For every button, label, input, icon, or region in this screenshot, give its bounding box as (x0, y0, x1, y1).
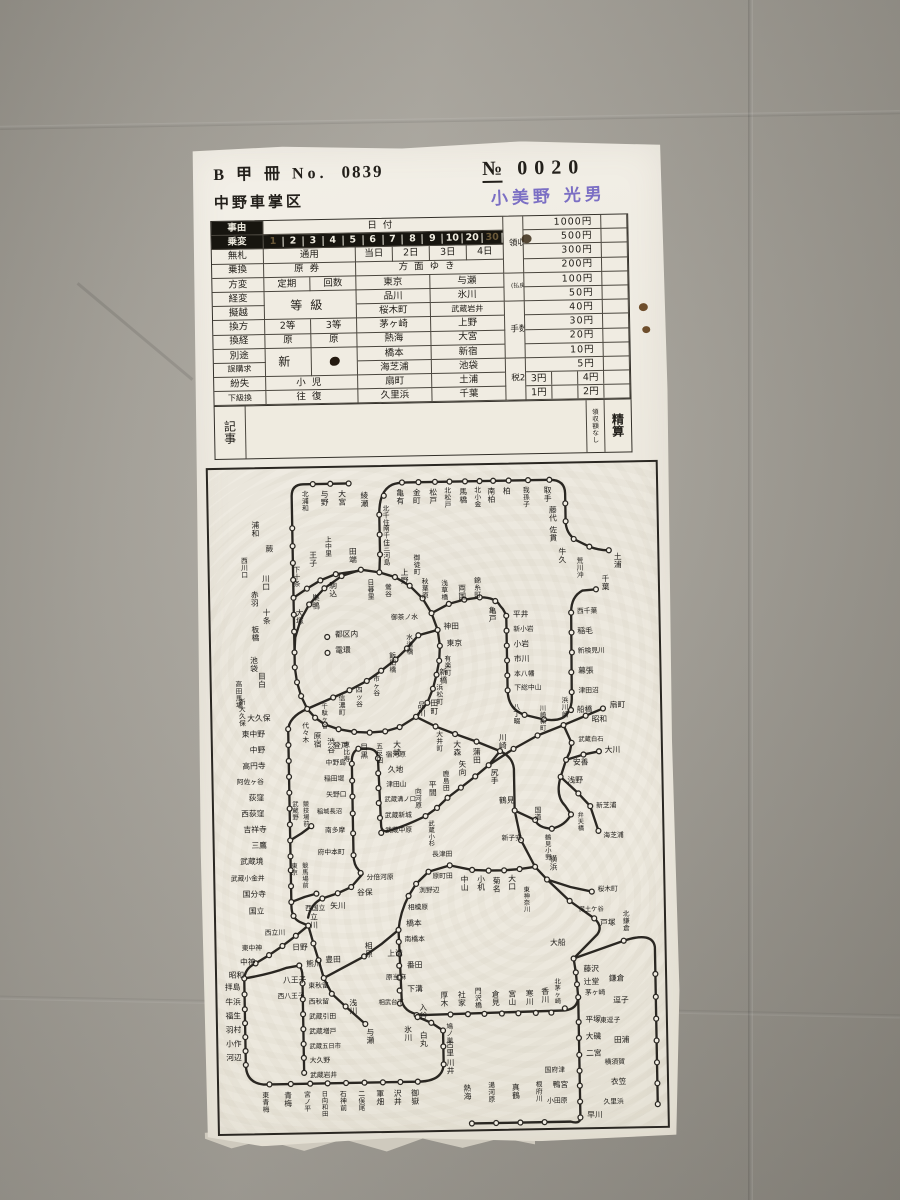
station-label: 武蔵増戸 (309, 1027, 336, 1037)
station-dot (563, 501, 568, 506)
ink-blob (329, 357, 339, 366)
station-dot (243, 1035, 248, 1040)
station-label: 社家 (458, 990, 466, 1008)
station-dot (517, 867, 522, 872)
station-label: 稲城長沼 (317, 807, 342, 817)
station-dot (516, 1011, 521, 1016)
station-dot (426, 870, 431, 875)
class-cell: 等級 (265, 290, 358, 320)
station-dot (286, 759, 291, 764)
station-label: 佐貫 (549, 525, 557, 543)
station-dot (377, 513, 382, 518)
station-label: 真鶴 (512, 1082, 520, 1100)
station-label: 馬橋 (459, 488, 467, 505)
station-dot (286, 743, 291, 748)
station-dot (653, 972, 658, 977)
station-label: 与瀬 (366, 1028, 374, 1045)
station-dot (576, 995, 581, 1000)
station-label: 国道 (534, 807, 541, 822)
station-dot (398, 1080, 403, 1085)
station-dot (347, 688, 352, 693)
station-label: 与野 (321, 490, 329, 507)
station-label: 大久野 (310, 1056, 331, 1065)
fee-value-cell: 100円 (524, 272, 602, 288)
station-label: 海芝浦 (603, 830, 624, 839)
fee-small-cell (552, 386, 578, 400)
station-label: 新芝浦 (596, 801, 617, 810)
station-label: 氷川 (404, 1025, 412, 1043)
station-dot (486, 763, 491, 768)
reason-header: 事由 (211, 221, 263, 236)
station-label: 浅野 (567, 775, 583, 785)
date-number: 2 (283, 236, 303, 246)
station-label: 門沢橋 (475, 988, 482, 1010)
date-number: 20 (463, 233, 483, 243)
station-label: 横須賀 (605, 1057, 626, 1066)
station-dot (287, 791, 292, 796)
station-label: 羽村 (226, 1025, 242, 1035)
station-label: 品川 (418, 701, 426, 718)
validity-option: 当日 (356, 247, 393, 262)
station-label: 大磯 (586, 1031, 602, 1041)
office-name: 中野車掌区 (214, 190, 304, 213)
destination-cell: 武蔵岩井 (431, 302, 505, 318)
station-dot (301, 1027, 306, 1032)
station-label: 鶯谷 (385, 583, 392, 599)
station-label: 二俣尾 (358, 1090, 365, 1112)
station-dot (601, 706, 606, 711)
station-label: 代々木 (302, 721, 309, 744)
station-dot (376, 786, 381, 791)
station-dot (397, 988, 402, 993)
station-label: 平井 (513, 609, 529, 619)
station-dot (379, 831, 384, 836)
book-label: B 甲 冊 No. (213, 159, 328, 185)
destination-cell: 茅ヶ崎 (357, 317, 431, 333)
station-label: 川崎 (499, 734, 507, 751)
station-label: 駒込 (329, 581, 337, 599)
station-dot (358, 871, 363, 876)
fee-value-cell: 500円 (523, 229, 601, 245)
station-label: 根府川 (536, 1080, 543, 1103)
station-dot (379, 669, 384, 674)
station-dot (350, 811, 355, 816)
station-label: 阿佐ヶ谷 (237, 777, 264, 787)
station-label: 鴨宮 (553, 1079, 569, 1089)
reason-cell: 乗換 (212, 264, 264, 279)
fee-blank-cell (602, 271, 628, 286)
photo-background: B 甲 冊 No. 0839 № 0020 中野車掌区 小美野 光男 事由 日付… (0, 0, 900, 1200)
station-dot (346, 481, 351, 486)
notes-body (246, 401, 587, 459)
station-dot (295, 680, 300, 685)
station-label: 福生 (225, 1011, 241, 1021)
route-map-svg: 浦和蕨西川口川口赤羽十条板橋池袋目白高田馬場新大久保北浦和与野大宮下十条王子上中… (208, 462, 668, 1134)
station-dot (287, 822, 292, 827)
station-label: 東京 (447, 638, 463, 648)
station-dot (328, 482, 333, 487)
station-label: 中神 (240, 957, 256, 967)
station-dot (344, 1081, 349, 1086)
station-dot (343, 1004, 348, 1009)
station-dot (396, 928, 401, 933)
station-label: 辻堂 (584, 976, 600, 986)
station-label: 大久保 (247, 713, 271, 724)
station-label: 十条 (263, 608, 271, 626)
station-dot (493, 599, 498, 604)
station-label: 平塚 (585, 1015, 601, 1024)
station-label: 赤羽 (251, 591, 259, 608)
station-dot (569, 708, 574, 713)
reason-cell: 別途 (214, 349, 266, 364)
station-dot (414, 882, 419, 887)
station-dot (397, 725, 402, 730)
station-label: 大塚 (296, 608, 304, 626)
station-label: 小作 (226, 1039, 242, 1049)
reason-cell: 経変 (213, 292, 265, 307)
station-label: 番田 (407, 960, 423, 970)
station-dot (292, 630, 297, 635)
station-label: 本八幡 (514, 669, 535, 678)
station-dot (592, 916, 597, 921)
station-label: 二宮 (586, 1048, 602, 1058)
station-dot (381, 494, 386, 499)
destination-cell: 扇町 (358, 374, 432, 390)
station-label: 長津田 (432, 851, 453, 859)
station-dot (542, 1120, 547, 1125)
station-label: 北松戸 (444, 487, 451, 509)
station-label: 電環 (335, 646, 351, 655)
station-dot (447, 863, 452, 868)
station-dot (504, 644, 509, 649)
station-label: 市川 (514, 654, 530, 664)
station-dot (435, 806, 440, 811)
station-dot (577, 1053, 582, 1058)
station-dot (322, 586, 327, 591)
station-dot (561, 723, 566, 728)
date-number: 3 (303, 236, 323, 246)
station-label: 三鷹 (251, 840, 267, 850)
station-dot (289, 884, 294, 889)
rail-line (291, 894, 316, 902)
date-number: 4 (323, 236, 343, 246)
station-label: 津田山 (386, 780, 407, 789)
station-label: 扇町 (610, 700, 626, 710)
station-label: 昭和 (591, 715, 607, 724)
station-dot (378, 552, 383, 557)
station-label: 八丁畷 (513, 704, 520, 726)
station-dot (533, 1011, 538, 1016)
station-dot (446, 602, 451, 607)
station-label: 相原 (365, 941, 373, 959)
station-label: 大宮 (338, 489, 346, 507)
station-dot (331, 695, 336, 700)
station-label: 中野 (250, 745, 266, 755)
station-label: 川崎新町 (540, 705, 547, 733)
station-label: 巣鴨 (312, 593, 320, 611)
fee-value-cell: 40円 (525, 300, 603, 316)
station-label: 保土ケ谷 (578, 904, 604, 914)
station-label: 原町田 (432, 872, 453, 880)
station-label: 武蔵新城 (385, 810, 412, 820)
station-label: 武蔵中原 (385, 825, 412, 835)
station-label: 目黒 (360, 743, 368, 760)
station-dot (351, 853, 356, 858)
station-label: 日野 (292, 943, 308, 952)
destination-cell: 上野 (431, 316, 505, 332)
station-dot (437, 659, 442, 664)
station-dot (494, 1121, 499, 1126)
station-dot (437, 644, 442, 649)
date-number: 30 (483, 233, 503, 243)
fee-value-cell: 1000円 (523, 215, 601, 231)
station-dot (567, 899, 572, 904)
station-dot (432, 480, 437, 485)
fee-small-cell (604, 370, 629, 384)
fee-small-cell (552, 371, 578, 385)
station-label: 上中里 (325, 535, 332, 558)
station-dot (433, 724, 438, 729)
station-label: 分倍河原 (366, 872, 393, 882)
station-dot (267, 953, 272, 958)
station-dot (482, 1012, 487, 1017)
station-label: 新検見川 (578, 646, 605, 656)
station-dot (321, 976, 326, 981)
station-dot (535, 733, 540, 738)
destination-cell: 新宿 (432, 344, 506, 360)
station-label: 日暮里 (367, 579, 374, 601)
station-dot (290, 561, 295, 566)
station-label: 原当麻 (386, 973, 407, 982)
station-label: 武蔵溝ノ口 (384, 794, 416, 804)
station-dot (469, 1121, 474, 1126)
rail-line (515, 725, 573, 829)
station-dot (522, 713, 527, 718)
station-dot (577, 1084, 582, 1089)
station-dot (318, 578, 323, 583)
station-label: 浅草橋 (441, 579, 448, 602)
station-label: 東秋留 (308, 981, 329, 990)
station-dot (533, 865, 538, 870)
station-dot (367, 731, 372, 736)
station-dot (578, 1099, 583, 1104)
station-label: 競技場前 (303, 799, 310, 828)
station-label: 西秋留 (309, 997, 330, 1006)
book-number: 0839 (341, 162, 383, 183)
fee-value-cell: 200円 (524, 257, 602, 273)
station-label: 牛浜 (225, 997, 241, 1007)
fare-table: 事由 日付 123456789102030 通用 当日 2日 3日 4日 原券 … (210, 213, 631, 407)
stain-spot (642, 326, 650, 333)
station-dot (506, 478, 511, 483)
station-dot (653, 995, 658, 1000)
station-label: 金町 (413, 488, 421, 506)
station-label: 早川 (587, 1111, 603, 1120)
station-dot (349, 885, 354, 890)
station-dot (425, 701, 430, 706)
station-dot (577, 1036, 582, 1041)
station-dot (448, 1012, 453, 1017)
route-map: 浦和蕨西川口川口赤羽十条板橋池袋目白高田馬場新大久保北浦和与野大宮下十条王子上中… (206, 460, 670, 1136)
fee-blank-cell (602, 243, 628, 258)
station-dot (288, 854, 293, 859)
station-label: 谷保 (357, 887, 373, 897)
station-dot (325, 1081, 330, 1086)
station-label: 厚木 (440, 991, 448, 1008)
station-label: 田町 (430, 699, 438, 716)
station-label: 西立川 (265, 928, 286, 937)
fee-blank-cell (603, 314, 629, 329)
station-label: 王子 (309, 551, 317, 568)
conductor-stamp: 小美野 光男 (490, 179, 606, 209)
station-dot (596, 749, 601, 754)
station-label: 熱海 (463, 1083, 471, 1101)
station-dot (578, 1115, 583, 1120)
station-dot (526, 478, 531, 483)
station-dot (350, 779, 355, 784)
gen-cell: 原 (265, 334, 311, 349)
station-dot (447, 480, 452, 485)
fee-value-cell: 300円 (524, 243, 602, 259)
station-label: 綾瀬 (360, 491, 368, 509)
fee-value-cell: 10円 (526, 343, 604, 359)
station-dot (314, 892, 319, 897)
station-dot (549, 1011, 554, 1016)
station-dot (313, 716, 318, 721)
station-dot (502, 868, 507, 873)
station-dot (441, 1062, 446, 1067)
station-label: 軍畑 (376, 1090, 384, 1107)
reason-cell: 方変 (212, 278, 264, 293)
station-label: 南橋本 (404, 935, 425, 944)
station-label: 東逗子 (600, 1015, 621, 1024)
station-label: 北小金 (474, 487, 481, 509)
station-dot (563, 519, 568, 524)
station-label: 津田沼 (578, 686, 599, 695)
station-label: 下十条 (293, 566, 300, 588)
station-label: 西八王子 (277, 992, 304, 1001)
station-dot (299, 694, 304, 699)
station-label: 東神奈川 (524, 885, 531, 914)
cardboard-crease (0, 110, 900, 130)
station-dot (573, 970, 578, 975)
station-label: 北浦和 (302, 491, 309, 513)
station-label: 武蔵白石 (578, 734, 603, 744)
destination-cell: 東京 (356, 275, 430, 291)
fee-blank-cell (602, 257, 628, 272)
station-dot (569, 650, 574, 655)
station-label: 宮山 (508, 989, 516, 1007)
station-label: 取手 (544, 486, 552, 503)
station-dot (504, 629, 509, 634)
station-label: 立川 (310, 912, 318, 930)
station-label: 千駄ヶ谷 (321, 702, 328, 731)
fee-blank-cell (601, 229, 627, 244)
station-label: 土浦 (614, 552, 622, 570)
station-label: 橋本 (406, 918, 422, 928)
destination-cell: 熱海 (357, 332, 431, 348)
fee-small-cell: 2円 (578, 385, 604, 399)
station-dot (576, 1020, 581, 1025)
station-label: 東青梅 (262, 1091, 269, 1114)
station-dot (654, 1038, 659, 1043)
station-label: 大森 (453, 739, 461, 757)
station-label: 武蔵野 (292, 800, 299, 822)
station-dot (301, 1012, 306, 1017)
station-dot (396, 940, 401, 945)
station-label: 水道橋 (406, 633, 413, 656)
station-label: 競馬場前 (302, 861, 309, 890)
station-label: 弁天橋 (577, 810, 584, 832)
station-dot (577, 1069, 582, 1074)
station-label: 川口 (262, 575, 270, 592)
station-dot (400, 480, 405, 485)
station-label: 幕張 (578, 665, 594, 675)
rail-line (306, 630, 439, 709)
station-dot (569, 630, 574, 635)
station-label: 五反田 (376, 743, 383, 765)
rail-line (291, 484, 351, 653)
station-dot (587, 545, 592, 550)
station-dot (569, 690, 574, 695)
station-label: 下総中山 (514, 683, 541, 693)
station-label: 上溝 (387, 948, 403, 958)
class2-cell: 2等 (265, 320, 311, 335)
station-label: 三河島 (383, 545, 390, 567)
station-label: 菊名 (493, 876, 501, 894)
validity-option: 2日 (393, 246, 430, 261)
station-dot (505, 658, 510, 663)
station-dot (243, 1049, 248, 1054)
station-dot (571, 956, 576, 961)
rail-line (290, 827, 312, 841)
station-label: 飯田橋 (389, 651, 396, 674)
station-dot (596, 829, 601, 834)
reason-cell: 擬越 (213, 306, 265, 321)
station-dot (576, 791, 581, 796)
station-label: 中野島 (326, 758, 347, 767)
station-dot (307, 602, 312, 607)
station-label: 武蔵五日市 (309, 1041, 341, 1051)
station-label: 青梅 (284, 1090, 292, 1108)
station-dot (654, 1017, 659, 1022)
station-dot (416, 480, 421, 485)
station-label: 久地 (388, 764, 404, 774)
station-dot (243, 1063, 248, 1068)
station-dot (511, 747, 516, 752)
station-dot (397, 964, 402, 969)
station-dot (434, 673, 439, 678)
stain-spot (639, 303, 648, 311)
station-label: 宿河原 (386, 750, 407, 759)
station-dot (569, 741, 574, 746)
station-dot (547, 478, 552, 483)
station-dot (621, 939, 626, 944)
station-label: 国立 (249, 906, 265, 916)
destination-cell: 大宮 (431, 330, 505, 346)
serial-number: № 0020 (482, 156, 586, 181)
station-dot (518, 1120, 523, 1125)
station-label: 熊川 (306, 959, 322, 969)
station-label: 荻窪 (249, 793, 265, 803)
station-dot (292, 650, 297, 655)
station-dot (558, 775, 563, 780)
station-label: 四ッ谷 (356, 687, 363, 709)
reason-cell: 換方 (213, 320, 265, 335)
station-label: 寒川 (526, 989, 534, 1007)
station-dot (588, 804, 593, 809)
station-dot (569, 812, 574, 817)
